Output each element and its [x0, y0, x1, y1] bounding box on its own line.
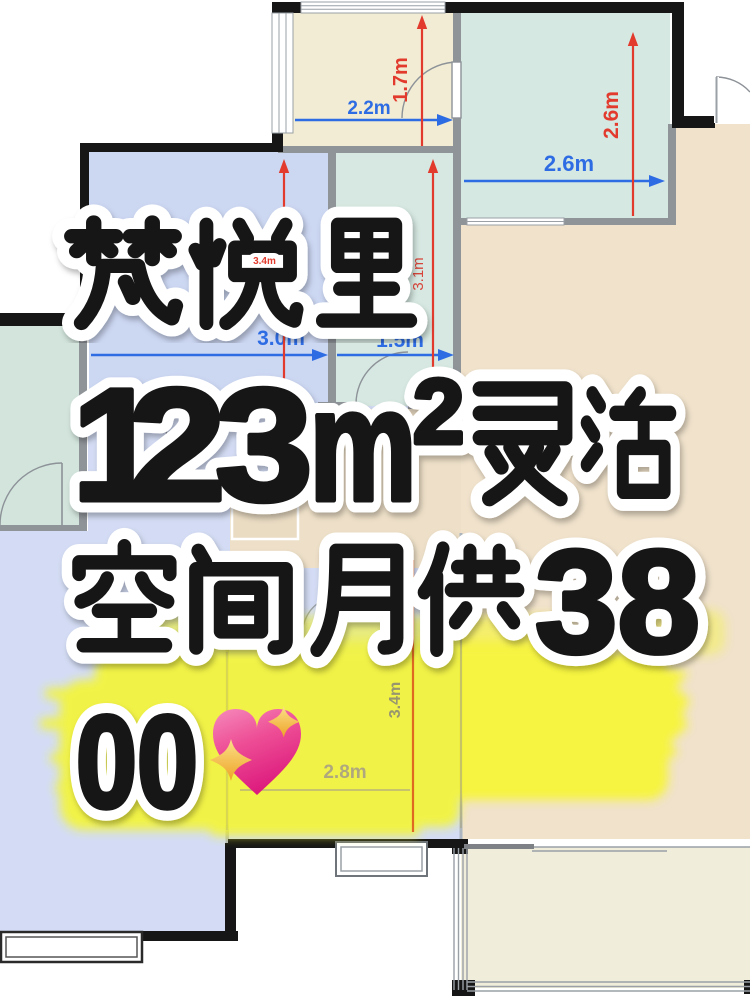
- svg-text:3.4m: 3.4m: [253, 256, 276, 267]
- svg-text:00: 00: [76, 688, 198, 835]
- svg-text:2.6m: 2.6m: [600, 91, 623, 139]
- svg-text:2.6m: 2.6m: [544, 151, 594, 176]
- svg-text:1.7m: 1.7m: [390, 57, 412, 103]
- svg-text:2.2m: 2.2m: [347, 98, 390, 119]
- svg-text:3.4m: 3.4m: [387, 682, 404, 718]
- svg-text:2.8m: 2.8m: [323, 762, 366, 783]
- svg-text:2: 2: [128, 355, 226, 534]
- svg-text:38: 38: [535, 520, 700, 683]
- svg-text:3: 3: [215, 355, 313, 534]
- svg-text:2: 2: [413, 361, 464, 463]
- svg-text:m: m: [309, 355, 417, 534]
